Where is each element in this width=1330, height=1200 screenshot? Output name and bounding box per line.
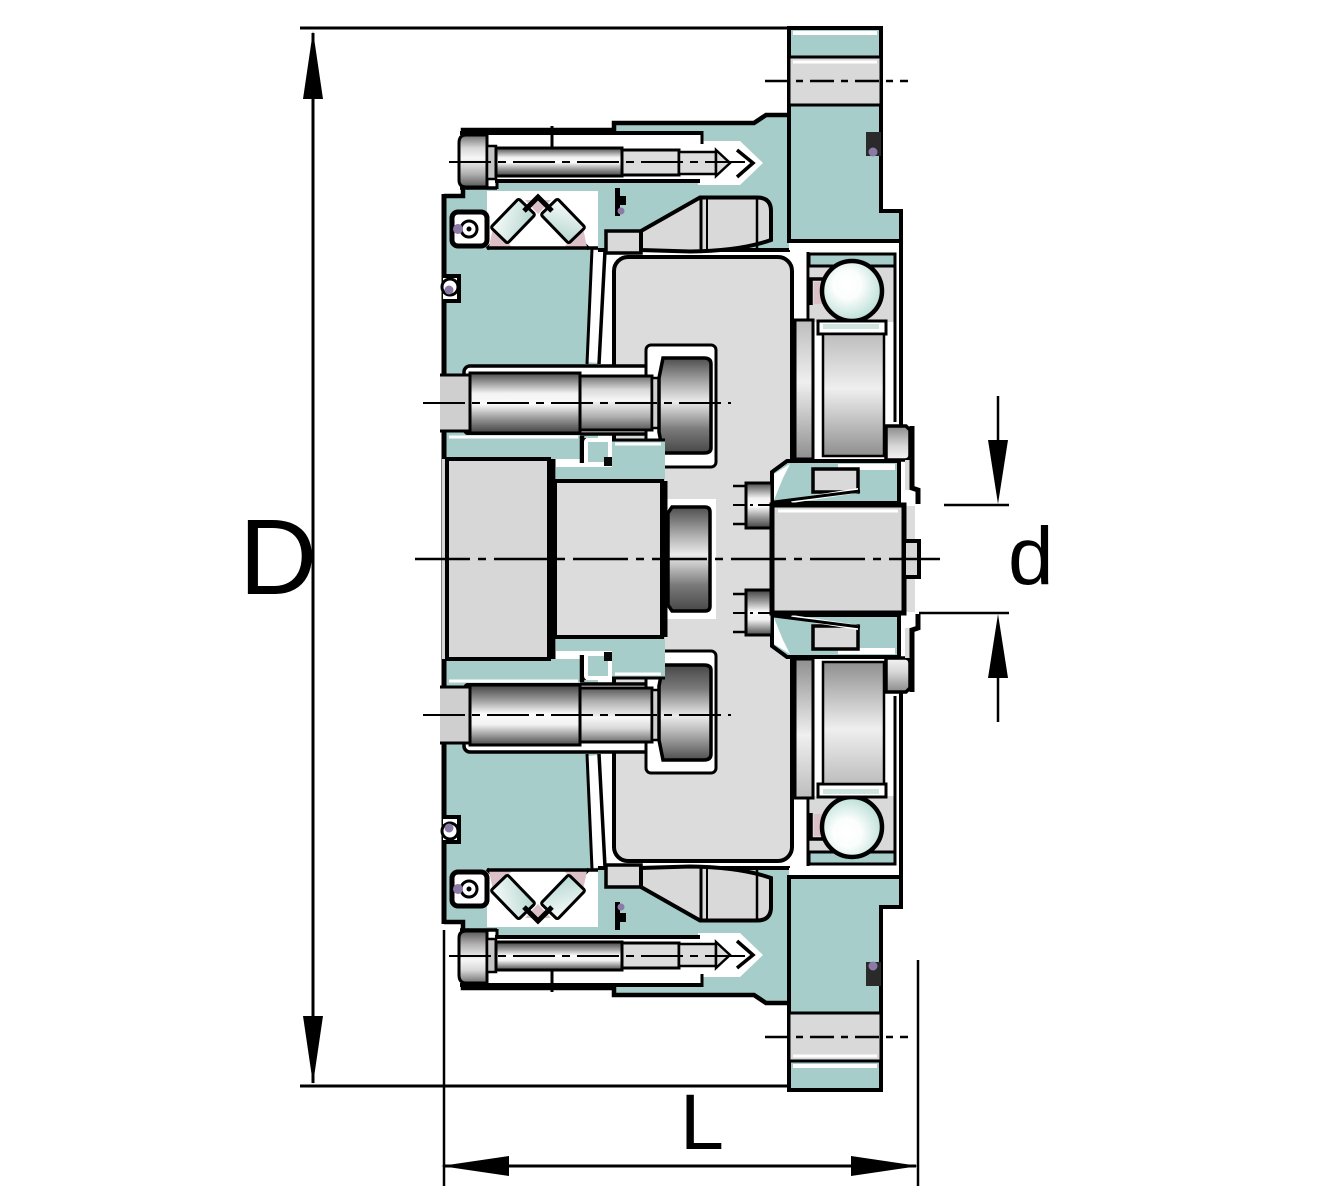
svg-text:D: D	[239, 496, 317, 617]
svg-text:d: d	[1008, 511, 1054, 602]
svg-text:L: L	[680, 1077, 724, 1166]
